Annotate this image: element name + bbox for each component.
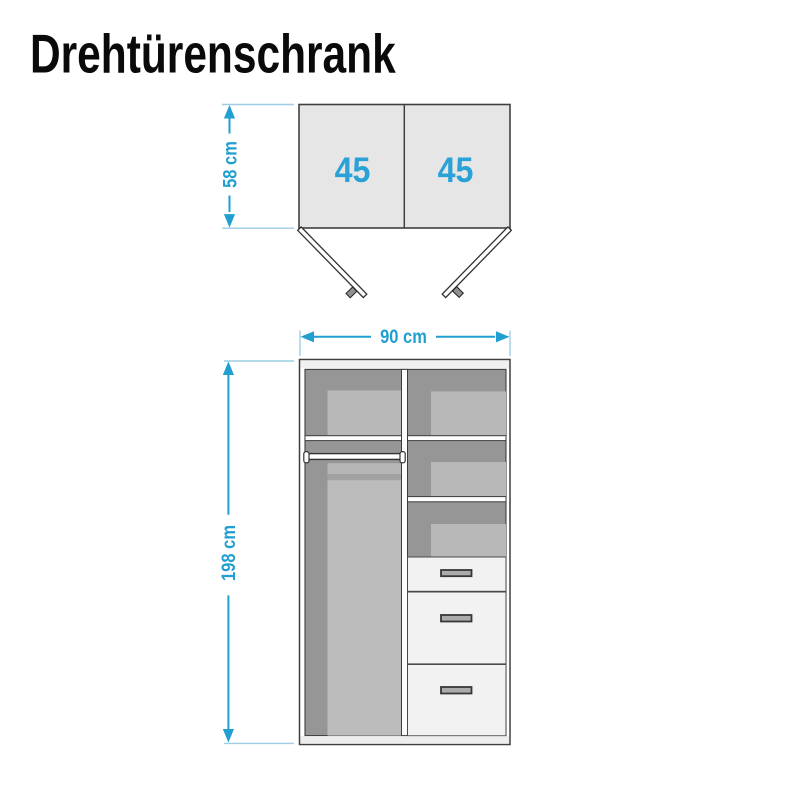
svg-text:Drehtürenschrank: Drehtürenschrank — [30, 24, 396, 84]
svg-text:45: 45 — [335, 152, 371, 191]
svg-text:45: 45 — [438, 152, 474, 191]
svg-text:58 cm: 58 cm — [219, 141, 240, 188]
svg-text:90 cm: 90 cm — [380, 326, 427, 347]
svg-text:198 cm: 198 cm — [218, 525, 239, 581]
